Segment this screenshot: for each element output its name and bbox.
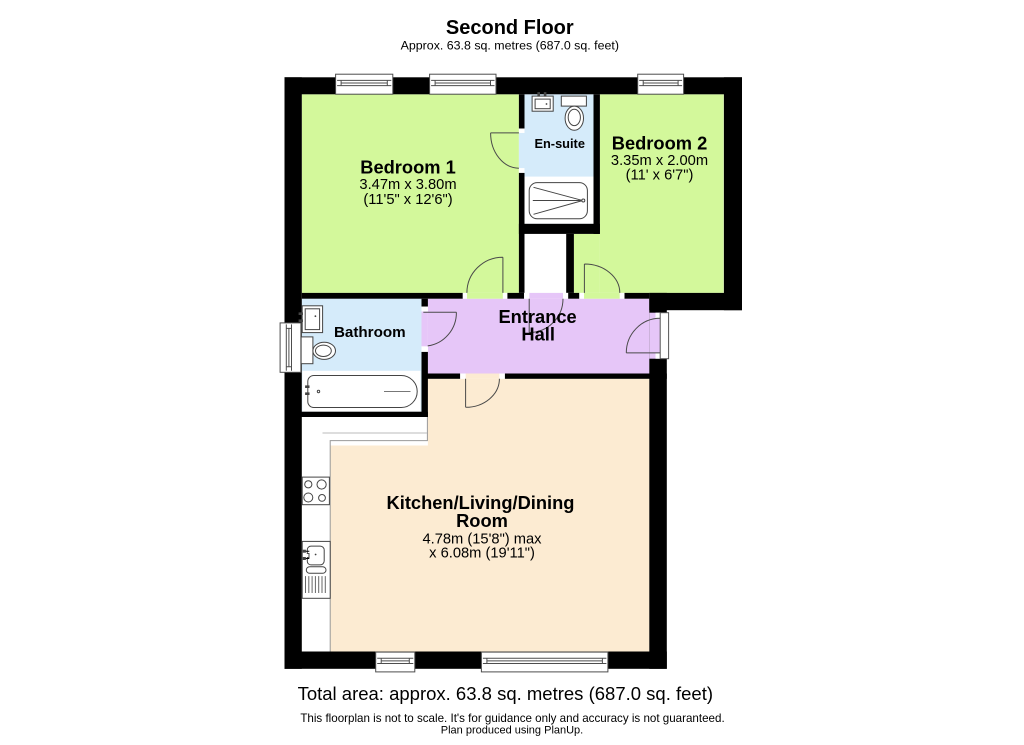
svg-text:Room: Room (456, 510, 508, 531)
svg-text:3.35m x 2.00m: 3.35m x 2.00m (611, 153, 708, 169)
svg-text:3.47m x 3.80m: 3.47m x 3.80m (359, 177, 456, 193)
svg-text:Hall: Hall (521, 324, 555, 345)
svg-text:Plan produced using PlanUp.: Plan produced using PlanUp. (441, 725, 583, 737)
svg-text:Second Floor: Second Floor (446, 17, 574, 39)
svg-text:Bedroom 2: Bedroom 2 (612, 133, 708, 154)
svg-text:(11' x 6'7"): (11' x 6'7") (626, 168, 694, 184)
svg-text:Approx. 63.8 sq. metres (687.0: Approx. 63.8 sq. metres (687.0 sq. feet) (401, 38, 619, 52)
svg-text:En-suite: En-suite (534, 136, 584, 151)
svg-text:x 6.08m (19'11"): x 6.08m (19'11") (429, 546, 535, 562)
svg-text:Bathroom: Bathroom (334, 324, 406, 341)
svg-text:This floorplan is not to scale: This floorplan is not to scale. It's for… (300, 712, 724, 725)
svg-text:(11'5" x 12'6"): (11'5" x 12'6") (363, 192, 452, 208)
svg-text:Bedroom 1: Bedroom 1 (360, 156, 456, 177)
svg-text:Total area: approx. 63.8 sq. m: Total area: approx. 63.8 sq. metres (687… (298, 683, 713, 704)
